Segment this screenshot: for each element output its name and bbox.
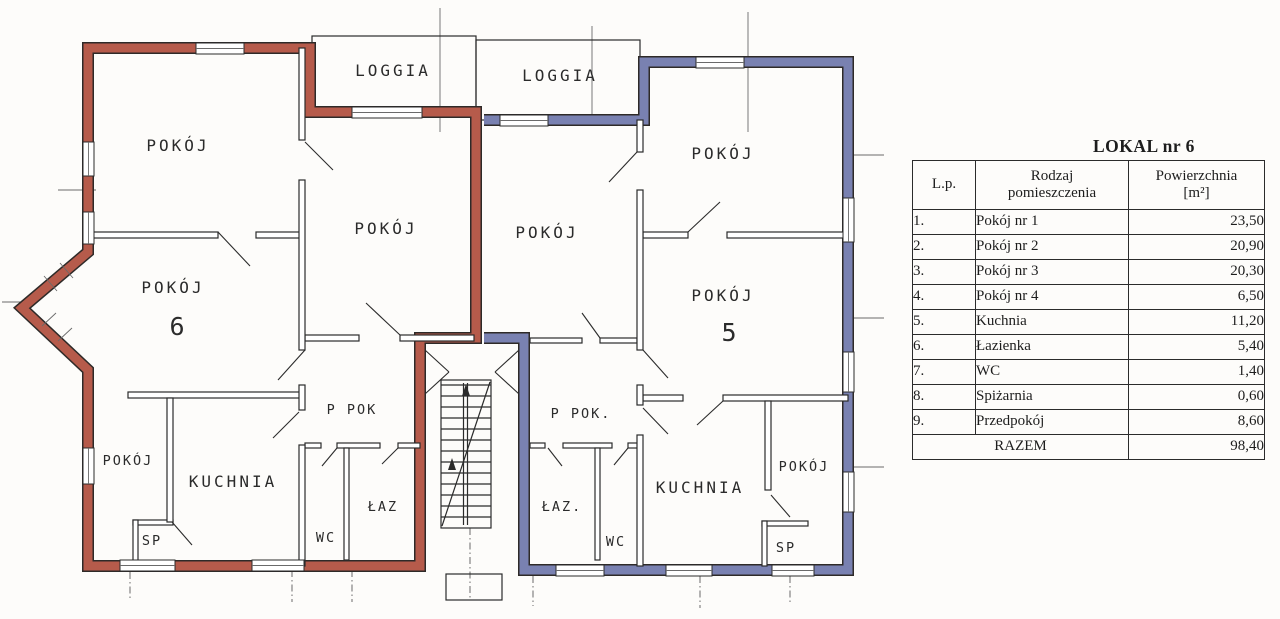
label-u5-room-main: POKÓJ (691, 286, 754, 305)
table-row: 1.Pokój nr 123,50 (913, 210, 1265, 235)
table-row: 2.Pokój nr 220,90 (913, 235, 1265, 260)
label-u5-number: 5 (721, 318, 736, 347)
label-u6-room-center: POKÓJ (354, 219, 417, 238)
table-total-row: RAZEM 98,40 (913, 435, 1265, 460)
label-u6-room-main: POKÓJ (141, 278, 204, 297)
col-header-type: Rodzaj pomieszczenia (976, 161, 1129, 210)
entry-porch (446, 574, 502, 600)
table-row: 4.Pokój nr 46,50 (913, 285, 1265, 310)
table-row: 3.Pokój nr 320,30 (913, 260, 1265, 285)
floor-plan: LOGGIA LOGGIA POKÓJ POKÓJ POKÓJ 6 POKÓJ … (0, 0, 905, 619)
label-u6-number: 6 (169, 312, 184, 341)
label-u5-wc: WC (606, 534, 626, 550)
table-row: 5.Kuchnia11,20 (913, 310, 1265, 335)
label-u6-hall: P POK (327, 402, 378, 418)
total-area: 98,40 (1129, 435, 1265, 460)
label-u5-kitchen: KUCHNIA (656, 478, 744, 497)
table-row: 8.Spiżarnia0,60 (913, 385, 1265, 410)
area-table: L.p. Rodzaj pomieszczenia Powierzchnia [… (912, 160, 1265, 460)
col-header-lp: L.p. (913, 161, 976, 210)
table-title: LOKAL nr 6 (1093, 136, 1195, 157)
table-header-row: L.p. Rodzaj pomieszczenia Powierzchnia [… (913, 161, 1265, 210)
label-u6-room-top-left: POKÓJ (146, 136, 209, 155)
table-row: 7.WC1,40 (913, 360, 1265, 385)
label-u5-hall: P POK. (551, 406, 612, 422)
dimension-lines (2, 8, 884, 608)
label-loggia-left: LOGGIA (355, 61, 431, 80)
total-label: RAZEM (913, 435, 1129, 460)
label-u5-room-small: POKÓJ (779, 457, 830, 475)
col-header-area: Powierzchnia [m²] (1129, 161, 1265, 210)
label-u6-bathroom: ŁAZ (367, 499, 398, 515)
label-loggia-right: LOGGIA (522, 66, 598, 85)
floorplan-document: LOGGIA LOGGIA POKÓJ POKÓJ POKÓJ 6 POKÓJ … (0, 0, 1280, 619)
label-u6-wc: WC (316, 530, 336, 546)
staircase (441, 380, 502, 600)
label-u6-room-small: POKÓJ (103, 451, 154, 469)
table-row: 6.Łazienka5,40 (913, 335, 1265, 360)
label-u6-pantry: SP (142, 533, 162, 549)
label-u5-room-top-right: POKÓJ (691, 144, 754, 163)
table-row: 9.Przedpokój8,60 (913, 410, 1265, 435)
label-u5-pantry: SP (776, 540, 796, 556)
label-u5-bathroom: ŁAZ. (541, 499, 583, 515)
label-u5-room-center: POKÓJ (515, 223, 578, 242)
label-u6-kitchen: KUCHNIA (189, 472, 277, 491)
